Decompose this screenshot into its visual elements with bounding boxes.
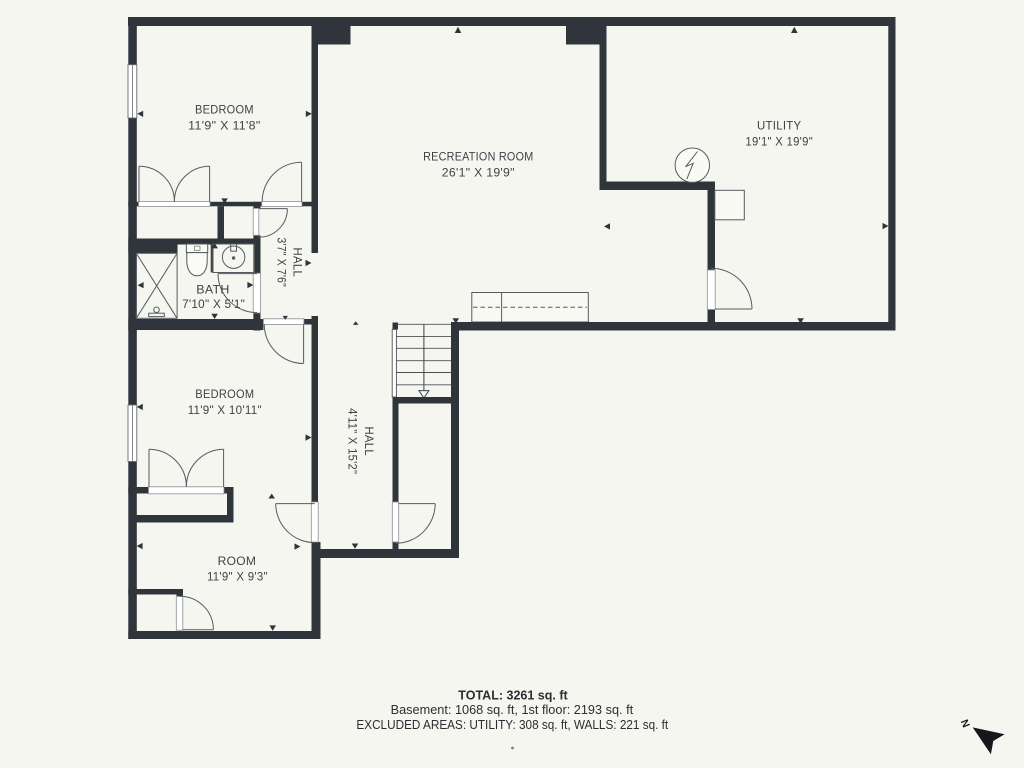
svg-text:HALL: HALL — [362, 426, 376, 456]
svg-text:TOTAL: 3261 sq. ft: TOTAL: 3261 sq. ft — [458, 687, 568, 702]
svg-text:BEDROOM: BEDROOM — [195, 103, 254, 117]
svg-text:HALL: HALL — [291, 248, 305, 278]
svg-text:RECREATION ROOM: RECREATION ROOM — [423, 150, 533, 164]
svg-text:EXCLUDED AREAS: UTILITY: 308 s: EXCLUDED AREAS: UTILITY: 308 sq. ft, WAL… — [356, 717, 668, 732]
svg-text:ROOM: ROOM — [218, 554, 257, 568]
svg-text:3'7" X 7'6": 3'7" X 7'6" — [274, 238, 288, 288]
svg-text:19'1" X 19'9": 19'1" X 19'9" — [745, 134, 813, 148]
svg-text:BATH: BATH — [196, 282, 229, 296]
svg-text:4'11" X 15'2": 4'11" X 15'2" — [345, 408, 359, 474]
svg-text:UTILITY: UTILITY — [757, 118, 801, 132]
svg-text:BEDROOM: BEDROOM — [195, 387, 254, 401]
svg-text:11'9" X 11'8": 11'9" X 11'8" — [188, 118, 260, 132]
svg-text:11'9" X 9'3": 11'9" X 9'3" — [207, 569, 268, 583]
svg-text:Basement: 1068 sq. ft, 1st flo: Basement: 1068 sq. ft, 1st floor: 2193 s… — [391, 702, 634, 717]
svg-text:26'1" X 19'9": 26'1" X 19'9" — [442, 166, 515, 180]
svg-text:11'9" X 10'11": 11'9" X 10'11" — [188, 403, 262, 417]
svg-text:7'10" X 5'1": 7'10" X 5'1" — [182, 297, 245, 311]
